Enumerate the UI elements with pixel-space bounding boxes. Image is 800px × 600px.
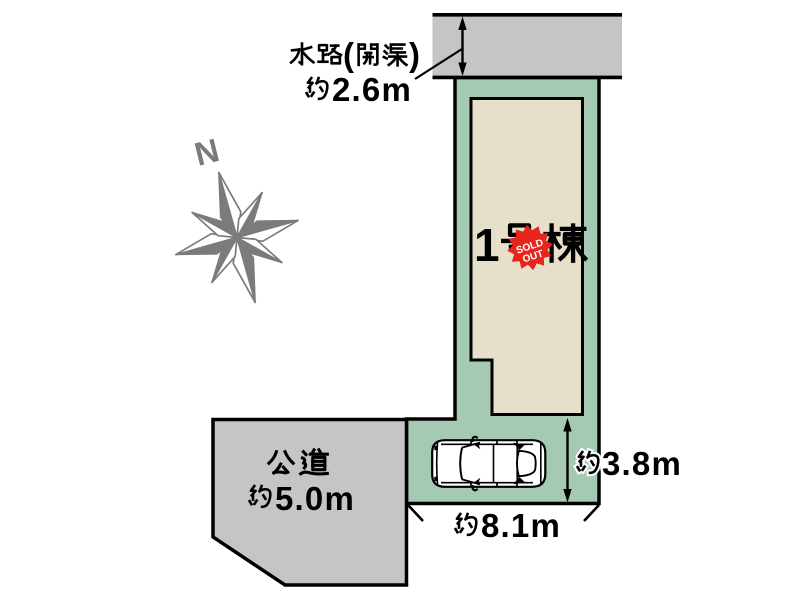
svg-text:3.8m: 3.8m — [602, 445, 682, 482]
svg-text:(: ( — [343, 36, 354, 73]
svg-text:8.1m: 8.1m — [481, 507, 561, 544]
svg-text:): ) — [409, 36, 420, 73]
svg-text:N: N — [191, 131, 223, 173]
svg-text:2.6m: 2.6m — [332, 71, 412, 108]
svg-text:1: 1 — [474, 219, 500, 271]
svg-text:5.0m: 5.0m — [275, 480, 355, 517]
